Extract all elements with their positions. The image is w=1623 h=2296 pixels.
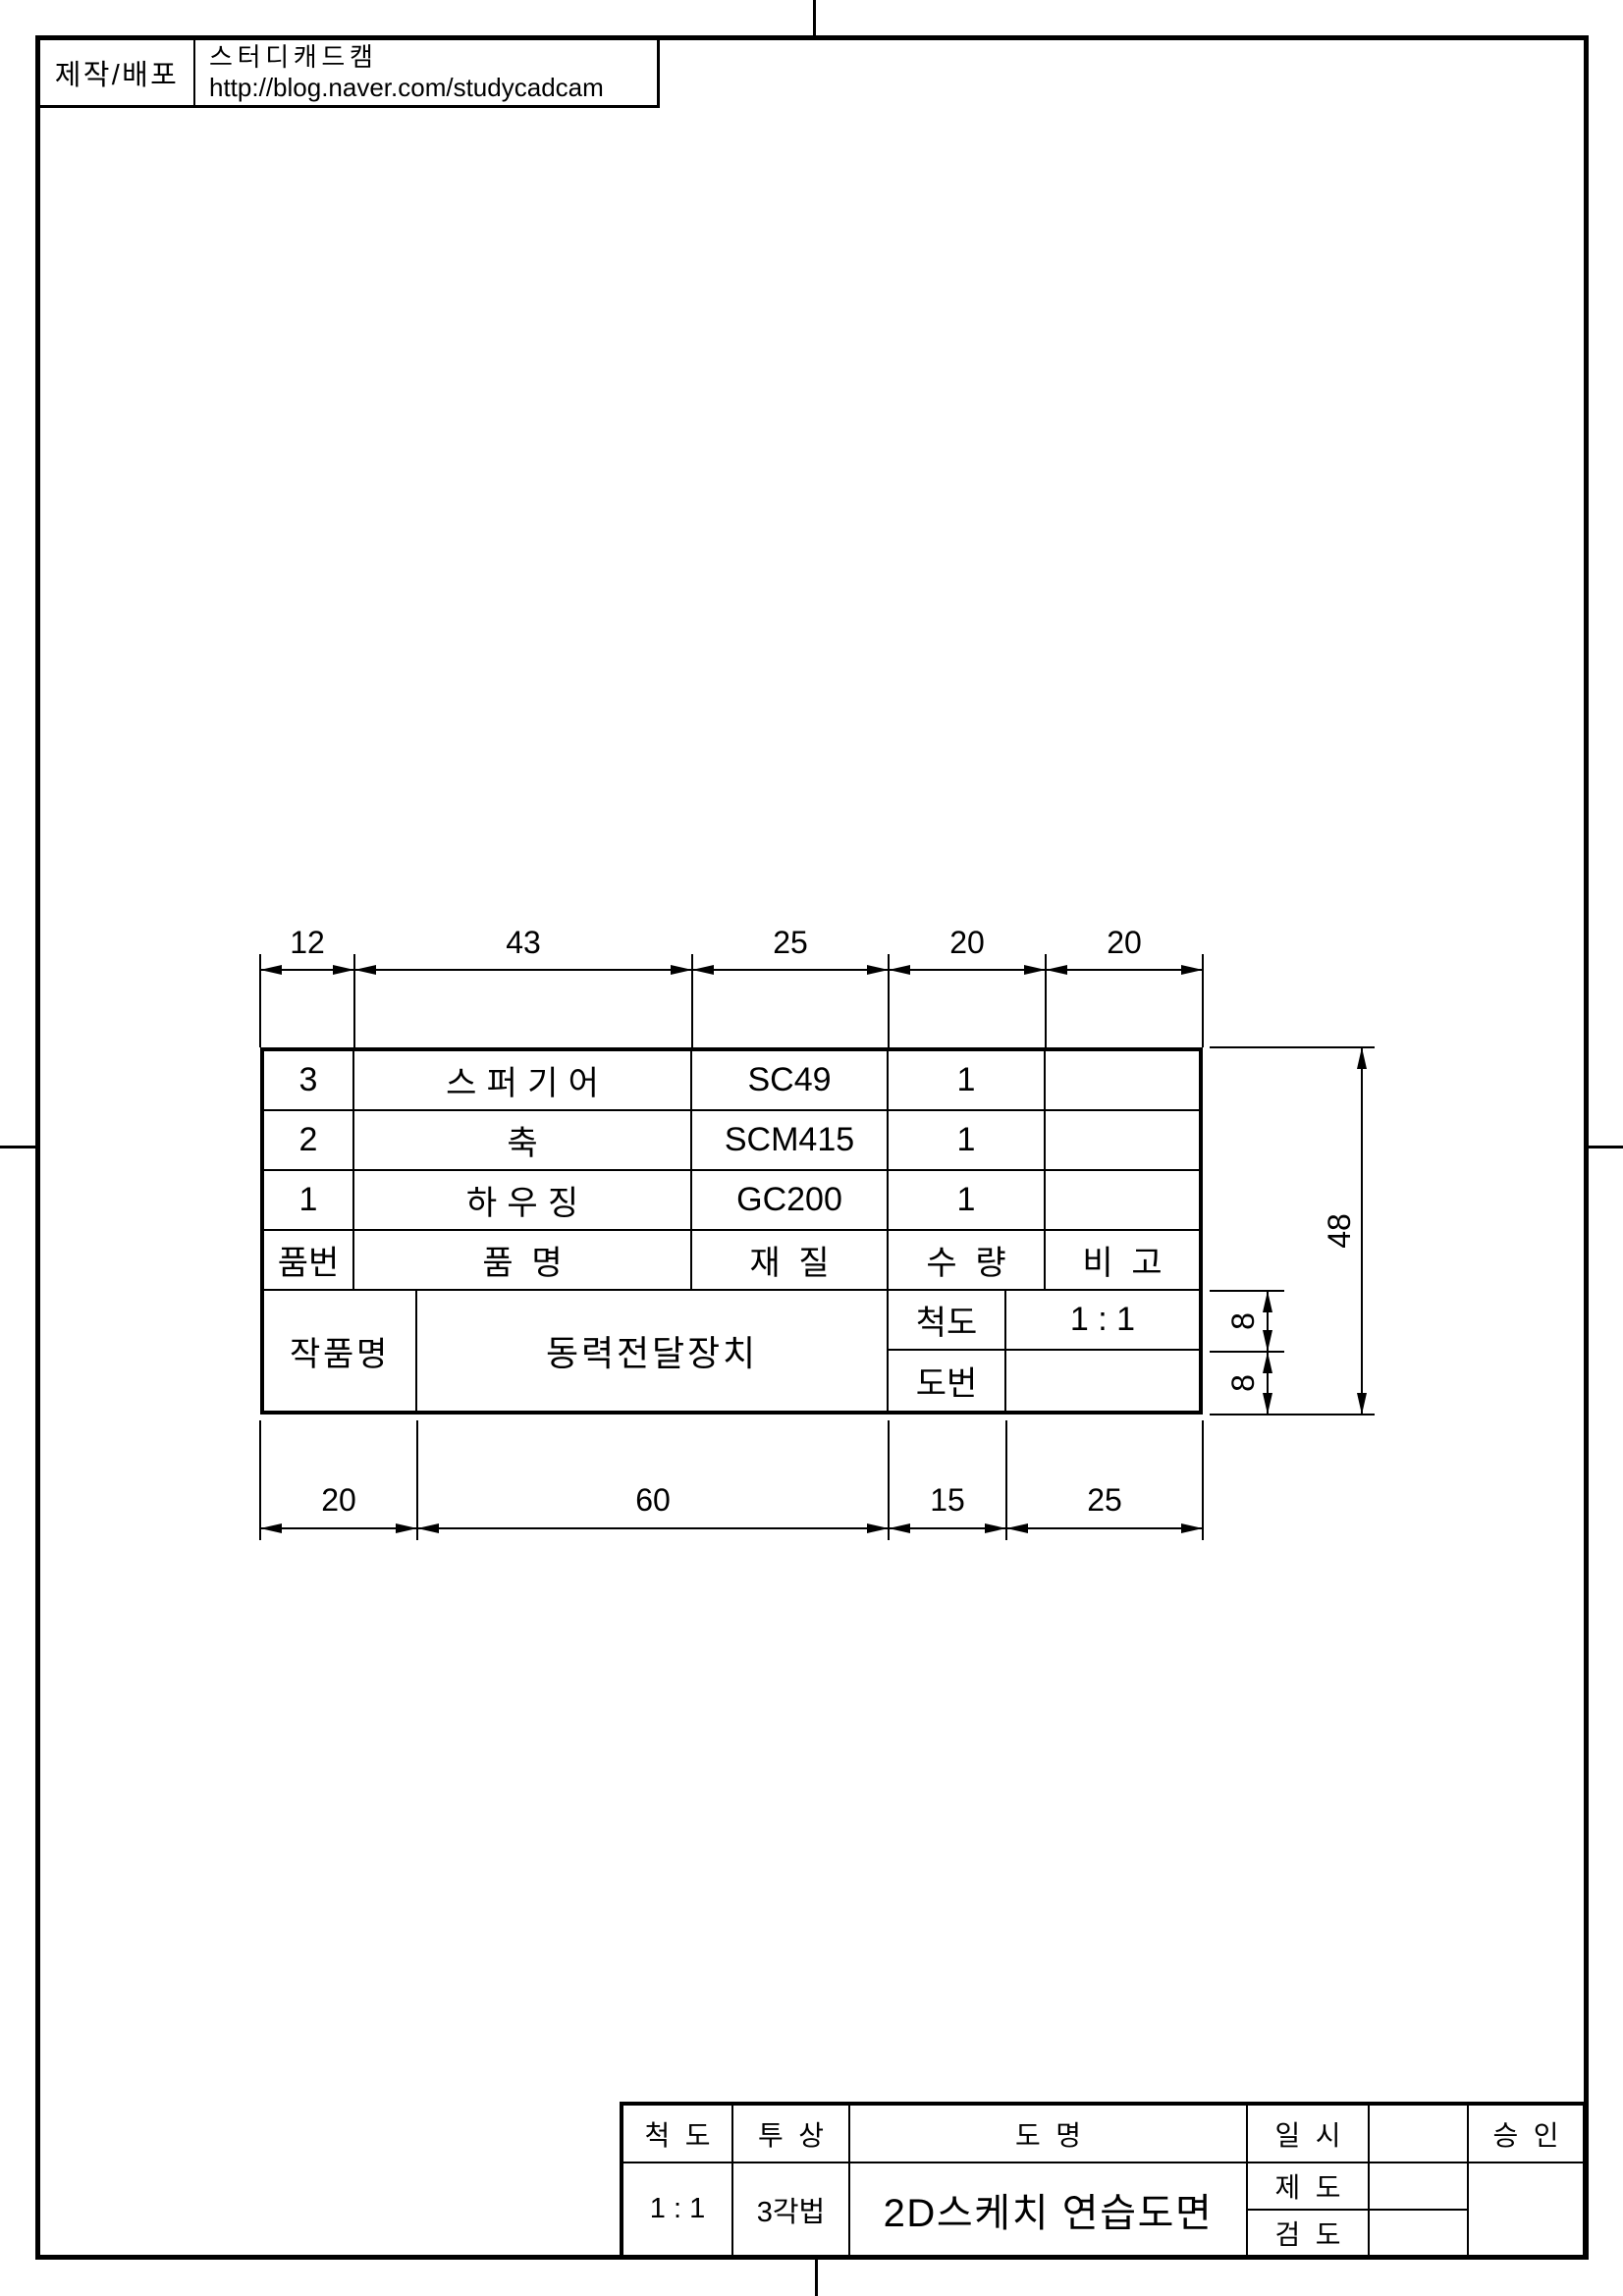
date-value (1370, 2106, 1469, 2163)
extension-line (1210, 1414, 1375, 1415)
dim-value: 48 (1318, 1187, 1361, 1275)
dim-value: 43 (464, 921, 582, 964)
approval-label: 승인 (1469, 2106, 1583, 2163)
arrowhead (1006, 1523, 1028, 1533)
part-note (1046, 1111, 1199, 1171)
dim-value: 20 (908, 921, 1026, 964)
arrowhead (889, 965, 910, 975)
part-name: 스퍼기어 (354, 1051, 692, 1111)
arrowhead (260, 1523, 282, 1533)
part-note (1046, 1051, 1199, 1111)
credit-info: 스터디캐드캠 http://blog.naver.com/studycadcam (195, 40, 657, 105)
header-qty: 수량 (889, 1231, 1046, 1291)
date-label: 일시 (1248, 2106, 1370, 2163)
extension-line (1210, 1290, 1284, 1292)
arrowhead (867, 1523, 889, 1533)
scale-value: 1 : 1 (1006, 1291, 1199, 1351)
part-qty: 1 (889, 1051, 1046, 1111)
part-no: 3 (264, 1051, 354, 1111)
dimension-line (1361, 1047, 1363, 1415)
part-material: GC200 (692, 1171, 889, 1231)
drawing-sheet: 제작/배포 스터디캐드캠 http://blog.naver.com/study… (0, 0, 1623, 2296)
extension-line (416, 1420, 418, 1540)
arrowhead (333, 965, 354, 975)
parts-table-footer: 작품명 동력전달장치 척도 1 : 1 도번 (264, 1291, 1199, 1411)
header-material: 재질 (692, 1231, 889, 1291)
projection-value: 3각법 (733, 2163, 850, 2255)
dim-value: 20 (1065, 921, 1183, 964)
dim-value: 8 (1221, 1300, 1265, 1343)
check-label: 검도 (1248, 2211, 1370, 2255)
approval-value (1469, 2163, 1583, 2255)
arrowhead (889, 1523, 910, 1533)
arrowhead (260, 965, 282, 975)
arrowhead (692, 965, 714, 975)
part-material: SC49 (692, 1051, 889, 1111)
arrowhead (1024, 965, 1046, 975)
dim-value: 25 (731, 921, 849, 964)
header-part-name: 품명 (354, 1231, 692, 1291)
part-no: 2 (264, 1111, 354, 1171)
check-value (1370, 2211, 1469, 2255)
header-note: 비고 (1046, 1231, 1199, 1291)
arrowhead (867, 965, 889, 975)
draft-value (1370, 2163, 1469, 2211)
centering-mark-left (0, 1146, 37, 1148)
dim-value: 15 (889, 1478, 1006, 1522)
scale-header: 척도 (623, 2106, 733, 2163)
extension-line (1202, 1420, 1204, 1540)
drawing-name-header: 도명 (850, 2106, 1248, 2163)
arrowhead (671, 965, 692, 975)
credit-label: 제작/배포 (40, 40, 195, 105)
arrowhead (1357, 1393, 1367, 1415)
scale-label: 척도 (889, 1291, 1006, 1351)
extension-line (1210, 1351, 1284, 1353)
extension-line (1210, 1046, 1375, 1048)
arrowhead (396, 1523, 417, 1533)
credit-url: http://blog.naver.com/studycadcam (209, 73, 657, 103)
projection-header: 투상 (733, 2106, 850, 2163)
part-qty: 1 (889, 1111, 1046, 1171)
credit-box: 제작/배포 스터디캐드캠 http://blog.naver.com/study… (40, 40, 660, 108)
part-qty: 1 (889, 1171, 1046, 1231)
arrowhead (1181, 1523, 1203, 1533)
draft-label: 제도 (1248, 2163, 1370, 2211)
drawing-no-label: 도번 (889, 1351, 1006, 1411)
project-name-label: 작품명 (264, 1291, 417, 1411)
extension-line (259, 1420, 261, 1540)
project-name-value: 동력전달장치 (417, 1291, 889, 1411)
centering-mark-bottom (815, 2259, 818, 2296)
part-no: 1 (264, 1171, 354, 1231)
arrowhead (354, 965, 376, 975)
header-part-no: 품번 (264, 1231, 354, 1291)
credit-brand: 스터디캐드캠 (209, 42, 657, 73)
part-name: 하우징 (354, 1171, 692, 1231)
parts-table: 3 스퍼기어 SC49 1 2 축 SCM415 1 1 하우징 GC200 1… (260, 1047, 1203, 1415)
parts-table-rows: 3 스퍼기어 SC49 1 2 축 SCM415 1 1 하우징 GC200 1… (264, 1051, 1199, 1291)
arrowhead (1357, 1047, 1367, 1069)
centering-mark-right (1586, 1146, 1623, 1148)
dim-value: 8 (1221, 1362, 1265, 1405)
arrowhead (1181, 965, 1203, 975)
dim-value: 20 (280, 1478, 398, 1522)
part-name: 축 (354, 1111, 692, 1171)
centering-mark-top (813, 0, 816, 37)
arrowhead (417, 1523, 439, 1533)
arrowhead (985, 1523, 1006, 1533)
dim-value: 25 (1046, 1478, 1163, 1522)
scale-value: 1 : 1 (623, 2163, 733, 2255)
dim-value: 60 (594, 1478, 712, 1522)
part-note (1046, 1171, 1199, 1231)
dim-value: 12 (248, 921, 366, 964)
drawing-name-value: 2D스케치 연습도면 (850, 2163, 1248, 2255)
part-material: SCM415 (692, 1111, 889, 1171)
title-block: 척도 투상 도명 일시 승인 1 : 1 3각법 2D스케치 연습도면 제도 검… (620, 2102, 1587, 2259)
drawing-no-value (1006, 1351, 1199, 1411)
arrowhead (1046, 965, 1067, 975)
